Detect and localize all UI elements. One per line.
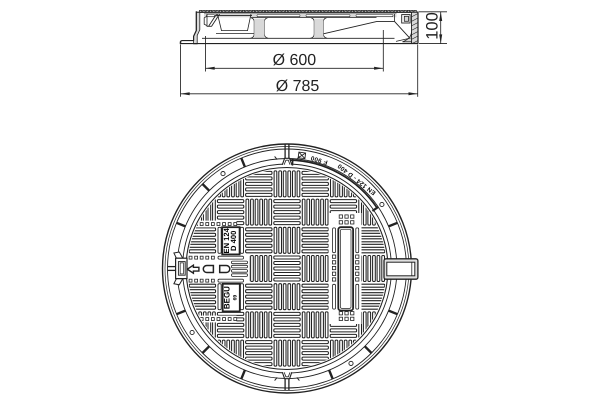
- svg-text:69: 69: [232, 295, 238, 301]
- svg-text:D 400: D 400: [229, 231, 238, 251]
- svg-text:100: 100: [424, 12, 442, 40]
- svg-text:BEGU: BEGU: [223, 286, 232, 309]
- svg-text:Ø 785: Ø 785: [276, 78, 320, 95]
- svg-text:Ø 600: Ø 600: [273, 52, 317, 69]
